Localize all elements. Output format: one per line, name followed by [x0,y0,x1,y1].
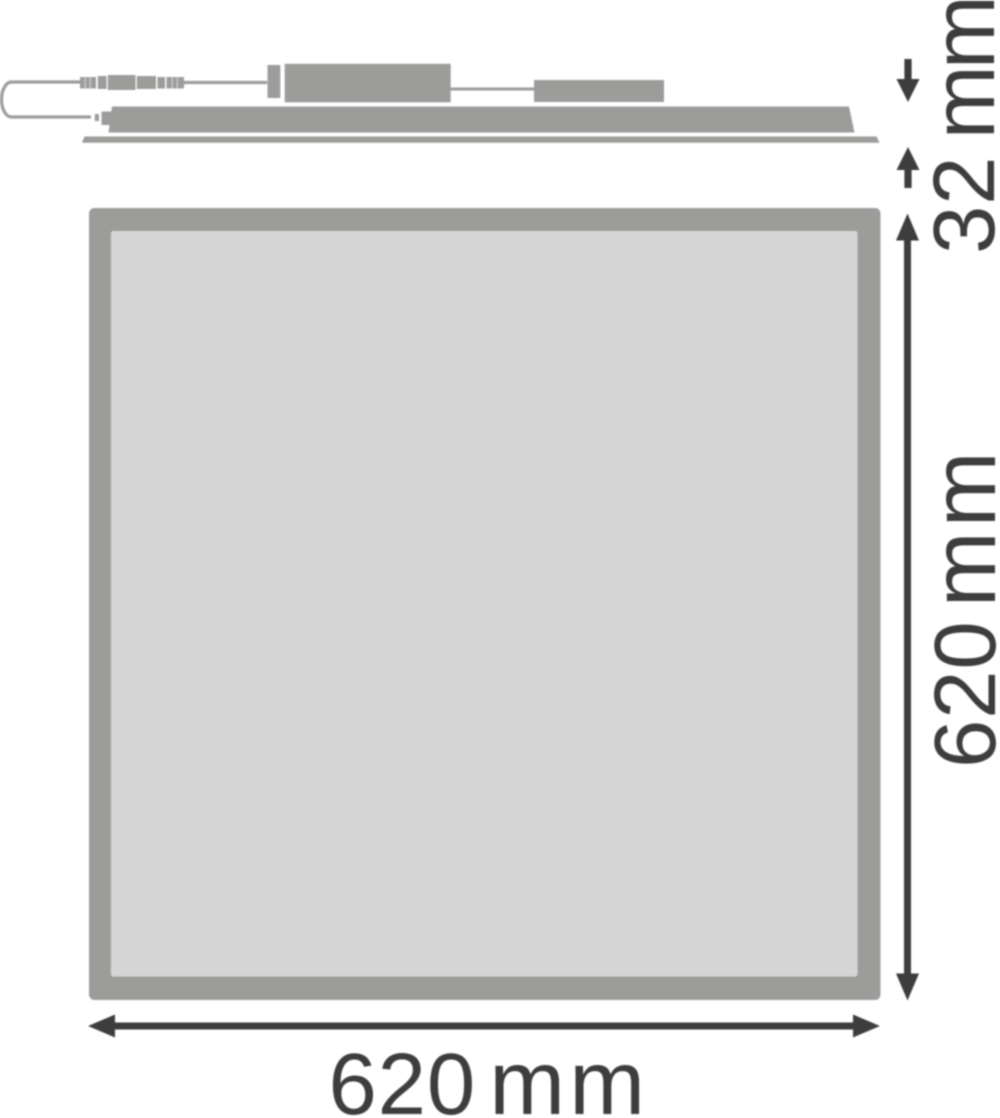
svg-text:620mm: 620mm [329,1033,650,1118]
svg-text:620mm: 620mm [914,447,1000,768]
svg-text:32mm: 32mm [913,0,1000,254]
